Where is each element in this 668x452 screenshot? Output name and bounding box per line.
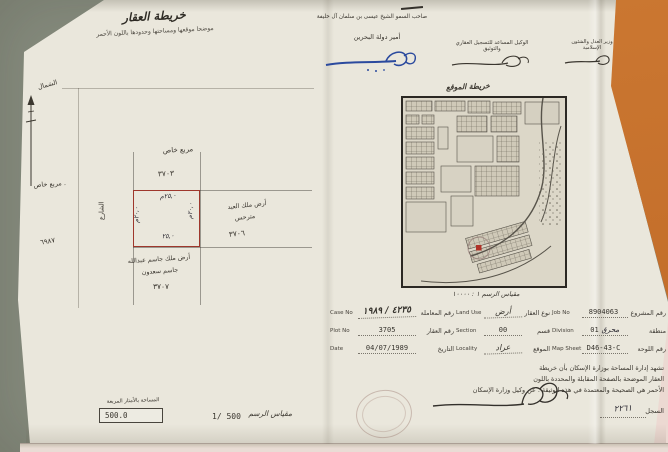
date-value: 04/07/1989 — [358, 344, 416, 354]
survey-line — [133, 247, 312, 248]
area-value-box: 500.0 — [99, 408, 163, 423]
certification-line1: تشهد إدارة المساحة بوزارة الإسكان بأن خر… — [420, 363, 664, 374]
section-label-en: Section — [456, 328, 484, 336]
land-use-label-en: Land Use — [456, 310, 484, 318]
site-map-graphic — [401, 96, 567, 288]
locality-value: عراد — [484, 342, 522, 354]
table-row: Case No ٤٢٣٥ / ١٩٨٩ رقم المعاملة Land Us… — [330, 301, 668, 318]
register-label: السجل — [638, 408, 664, 415]
locality-label-ar: الموقع — [522, 346, 552, 354]
land-use-label-ar: نوع العقار — [522, 310, 552, 318]
register-value: ٢٢٦١ — [606, 404, 640, 416]
section-label-ar: قسم — [522, 328, 552, 336]
date-label-en: Date — [330, 346, 358, 354]
site-map-scale: مقياس الرسم ١ : ١٠٠٠٠ — [438, 291, 534, 298]
north-arrow-icon — [22, 94, 46, 190]
frame-line-horizontal — [62, 88, 314, 89]
map-sheet-label-en: Map Sheet — [552, 346, 582, 354]
case-no-value: ٤٢٣٥ / ١٩٨٩ — [358, 305, 416, 319]
job-no-value: 8904063 — [582, 308, 628, 318]
paper-bottom-edge — [20, 443, 668, 452]
plot-no-label-en: Plot No — [330, 328, 358, 336]
ruler-signature-blue — [320, 45, 426, 75]
registrar-signature — [448, 51, 536, 71]
survey-line — [200, 152, 201, 305]
street-label: الشارع — [98, 193, 105, 229]
scale-label: مقياس الرسم — [244, 410, 292, 419]
table-row: Plot No 3705 رقم العقار Section 00 قسم D… — [330, 319, 668, 336]
ruler-name: صاحب السمو الشيخ عيسى بن سلمان آل خليفة — [314, 14, 430, 20]
plot-no-label-ar: رقم العقار — [416, 328, 456, 336]
case-no-label-en: Case No — [330, 310, 358, 318]
job-no-label-en: Job No — [552, 310, 582, 318]
division-label-ar: منطقة — [628, 328, 668, 336]
case-no-label-ar: رقم المعاملة — [416, 310, 456, 318]
map-sheet-label-ar: رقم اللوحة — [628, 346, 668, 354]
plot-no-value: 3705 — [358, 326, 416, 336]
register-dotted-line — [600, 417, 646, 418]
minister-title: وزير العدل والشئون الإسلامية — [566, 40, 618, 52]
scanned-cadastral-document: خريطة العقار موضحا موقعها ومساحتها وحدود… — [0, 0, 668, 452]
division-value: 01محرق — [582, 325, 628, 336]
dimension-left: ٢٠,٠م — [133, 200, 140, 230]
plot-marker-icon — [476, 245, 482, 251]
land-use-value: أرض — [484, 306, 522, 318]
date-label-ar: التاريخ — [416, 346, 456, 354]
paper-bottom-shadow — [26, 424, 666, 443]
division-label-en: Division — [552, 328, 582, 336]
map-sheet-value: D46-43-C — [582, 344, 628, 354]
ruler-title: أمير دولة البحرين — [348, 34, 406, 41]
frame-line-vertical — [78, 88, 79, 308]
section-value: 00 — [484, 326, 522, 336]
locality-label-en: Locality — [456, 346, 484, 354]
undersecretary-signature — [428, 376, 584, 416]
block-number-bottom: ٣٧٠٧ — [143, 283, 179, 292]
table-row: Date 04/07/1989 التاريخ Locality عراد ال… — [330, 337, 668, 354]
job-no-label-ar: رقم المشروع — [628, 310, 668, 318]
minister-signature — [562, 51, 616, 69]
dimension-right: ٢٠,٠م — [186, 196, 195, 226]
